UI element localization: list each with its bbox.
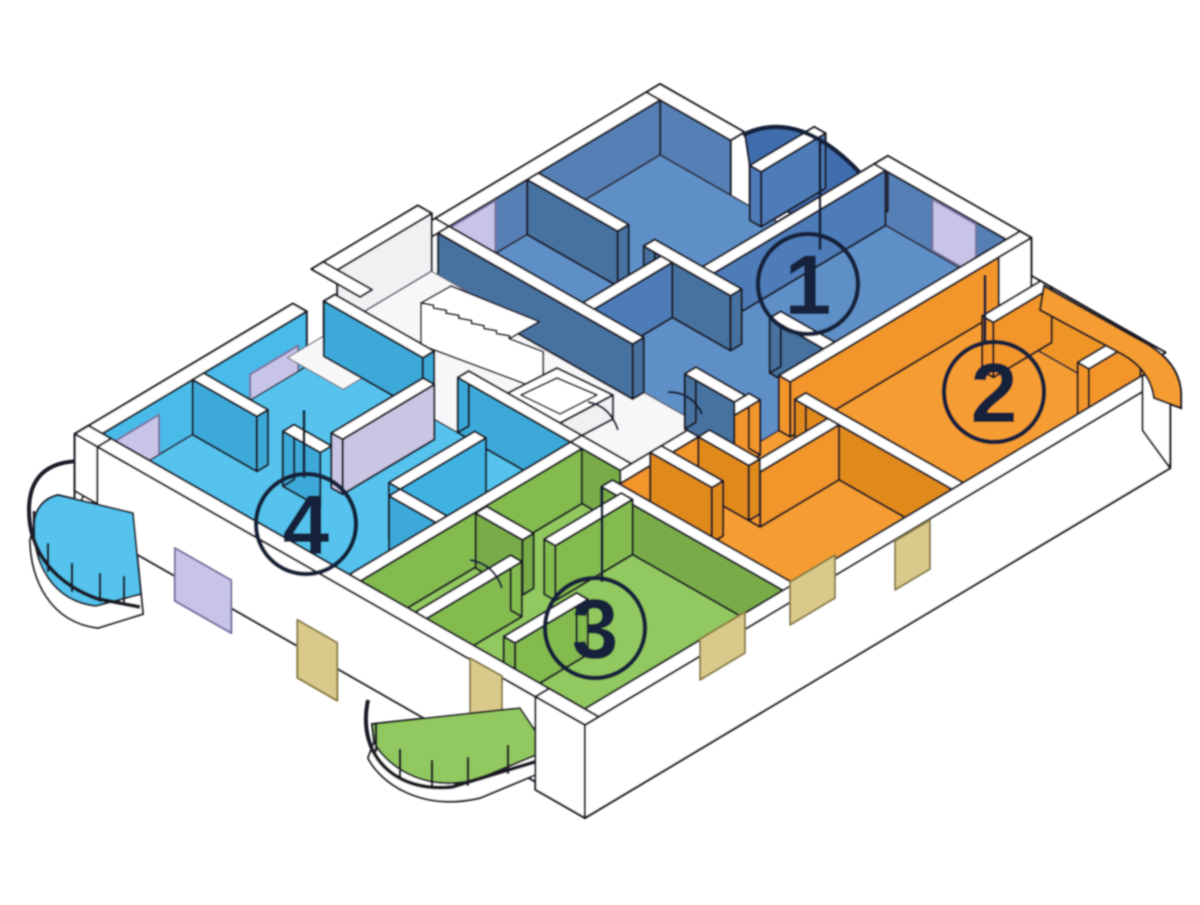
svg-text:1: 1	[785, 238, 832, 332]
svg-text:3: 3	[572, 582, 619, 676]
svg-text:2: 2	[971, 346, 1018, 440]
svg-text:4: 4	[283, 478, 330, 572]
